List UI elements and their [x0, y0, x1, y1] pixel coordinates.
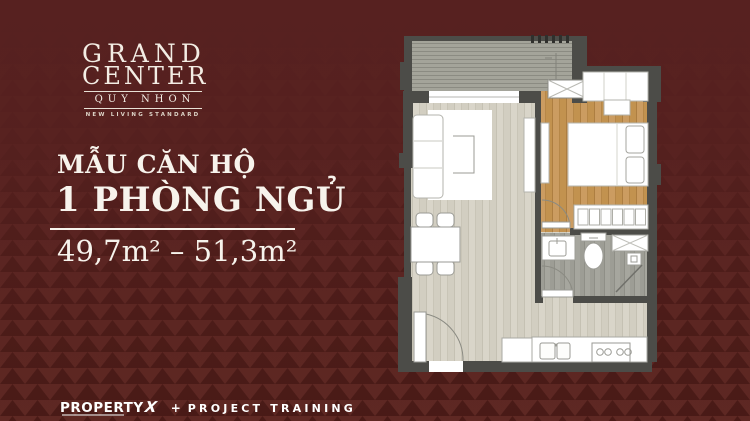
fridge: [502, 338, 532, 362]
dining-chair: [416, 213, 433, 227]
dining-chair: [437, 261, 454, 275]
ac-ledge: [548, 80, 586, 98]
project-training-label: PROJECT TRAINING: [188, 402, 356, 415]
area-range: 49,7m² – 51,3m²: [57, 234, 297, 268]
logo-location: QUY NHON: [82, 94, 204, 105]
propertyx-tagline-bar: [62, 414, 124, 416]
dining-chair: [437, 213, 454, 227]
dining-chair: [416, 261, 433, 275]
headline-divider: [50, 228, 295, 230]
propertyx-logo-x: X: [142, 398, 160, 416]
pillow: [626, 126, 644, 153]
wardrobe: [583, 72, 648, 101]
pillow: [626, 157, 644, 183]
window-stub-right: [519, 91, 536, 103]
kitchen-sink-icon: [540, 343, 570, 359]
bedroom-shelf: [541, 123, 549, 183]
logo-rule-bottom: [84, 108, 202, 109]
headline-title: 1 PHÒNG NGỦ: [56, 180, 346, 220]
bottom-wall-left: [398, 361, 429, 372]
logo-rule-top: [84, 91, 202, 92]
dresser: [574, 205, 648, 229]
kitchen: [502, 337, 647, 362]
floor-plan: [396, 18, 664, 378]
marketing-slide: GRAND CENTER QUY NHON NEW LIVING STANDAR…: [0, 0, 750, 421]
left-wall-lower: [398, 277, 412, 362]
logo-name-line2: CENTER: [82, 65, 204, 88]
washer-box: [627, 253, 641, 265]
logo-tagline: NEW LIVING STANDARD: [82, 112, 204, 119]
sofa: [413, 115, 443, 198]
bathroom-south-wall-right: [573, 296, 648, 303]
dining-table: [411, 227, 460, 262]
headline-eyebrow: MẪU CĂN HỘ: [57, 150, 256, 179]
shower-shelf: [612, 235, 648, 251]
left-wall-mid: [404, 159, 411, 279]
footer-plus: +: [171, 401, 181, 415]
bedroom-west-wall: [535, 91, 541, 303]
right-column: [647, 164, 661, 185]
entry-threshold: [429, 361, 463, 372]
brand-logo: GRAND CENTER QUY NHON NEW LIVING STANDAR…: [82, 42, 204, 119]
bedroom-north-wall: [576, 66, 648, 72]
nightstand: [604, 100, 630, 115]
bottom-wall-right: [463, 361, 652, 372]
tv-console: [524, 118, 535, 192]
window-stub-left: [403, 91, 429, 103]
left-column-top: [400, 62, 412, 90]
entry-door-leaf: [414, 312, 426, 362]
